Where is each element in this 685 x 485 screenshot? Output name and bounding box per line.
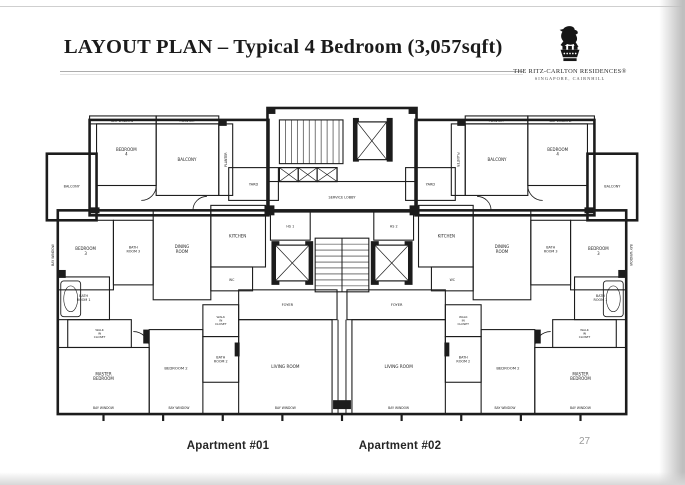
room-label: BALCONY [178,157,198,162]
room-stairs-top [279,120,343,164]
room-label: BAY WINDOW [51,243,55,265]
brand-name: THE RITZ-CARLTON RESIDENCES® [500,68,640,75]
room-label: BAY WINDOW [629,244,633,266]
room-label: BALCONY [64,185,81,189]
room-label: BATHROOM 1 [594,294,608,302]
wall-block [618,270,626,278]
door-swing [193,196,207,210]
wall-block [410,205,420,215]
wall-block [219,120,227,126]
page-title: LAYOUT PLAN – Typical 4 Bedroom (3,057sq… [64,36,534,59]
photo-right-edge [659,0,685,485]
room-label: WALKINCLOSET [215,315,227,326]
room-label: BALCONY [604,185,621,189]
wall-block [264,205,274,215]
caption-apartment-02: Apartment #02 [359,440,442,452]
room-label: BAY WINDOW [111,119,134,123]
wall-block [267,108,275,114]
room-label: LIVING ROOM [271,364,300,369]
photo-bottom-edge [0,472,685,485]
room-label: WC [450,278,456,282]
room-label: PLANTER [180,119,196,123]
wall-block [235,343,240,357]
ritz-carlton-logo: THE RITZ-CARLTON RESIDENCES® SINGAPORE, … [500,24,640,81]
room-label: BEDROOM 2 [496,367,520,371]
room-label: BATHROOM 1 [77,294,91,302]
wall-block [457,120,465,126]
room-label: BATHROOM 2 [214,356,228,364]
room-dining-l [153,210,211,299]
room-label: BAY WINDOW [495,406,516,410]
room-label: MASTERBEDROOM [570,371,591,381]
door-swing [477,196,491,210]
room-bedroom2-r [481,330,535,414]
title-divider [60,71,523,75]
room-label: DININGROOM [175,244,189,254]
caption-apartment-01: Apartment #01 [187,440,270,452]
room-label: KITCHEN [438,234,455,239]
room-bedroom2-l [149,330,203,414]
room-label: BEDROOM3 [75,246,96,256]
room-label: HS 2 [390,224,398,228]
room-label: BAY WINDOW [388,406,409,410]
room-label: PLANTER [456,152,460,167]
wall-block [409,108,417,114]
room-label: MASTERBEDROOM [93,371,114,381]
wall-block [584,207,594,213]
room-label: WALKINCLOSET [579,328,591,339]
room-label: BAY WINDOW [275,406,296,410]
door-swing [528,186,543,201]
wall-block [333,400,351,409]
room-label: WC [229,278,235,282]
floor-plan: BAY WINDOWPLANTERBEDROOM4BALCONYPLANTERB… [43,106,641,424]
page-number: 27 [579,436,590,447]
room-label: LIVING ROOM [385,364,414,369]
room-label: BEDROOM4 [116,147,137,157]
room-label: SERVICE LOBBY [329,196,357,200]
room-label: BATHROOM 3 [126,245,140,253]
plan-svg: BAY WINDOWPLANTERBEDROOM4BALCONYPLANTERB… [43,106,641,424]
room-label: YARD [426,183,436,187]
room-label: FOYER [391,303,403,307]
room-label: WALKINCLOSET [94,328,106,339]
wall-block [387,118,393,162]
room-label: KITCHEN [229,234,246,239]
room-label: HS 1 [286,224,294,228]
wall-block [90,207,100,213]
wall-block [444,343,449,357]
room-label: WALKINCLOSET [457,315,469,326]
room-label: FOYER [282,303,294,307]
room-label: YARD [249,183,259,187]
room-label: BAY WINDOW [169,406,190,410]
room-label: BEDROOM 2 [164,367,188,371]
room-label: BATHROOM 2 [456,356,470,364]
room-label: DININGROOM [495,244,509,254]
room-label: BEDROOM3 [588,246,609,256]
wall-block [58,270,66,278]
brand-location: SINGAPORE, CAIRNHILL [500,76,640,81]
room-label: BEDROOM4 [547,147,568,157]
room-label: BAY WINDOW [570,406,591,410]
room-label: BAY WINDOW [93,406,114,410]
lion-crest-icon [553,24,587,66]
photo-top-edge [0,6,685,7]
room-label: PLANTER [489,119,505,123]
room-label: BAY WINDOW [550,119,573,123]
door-swing [141,186,156,201]
room-label: BATHROOM 3 [544,245,558,253]
room-label: BALCONY [488,157,508,162]
room-dining-r [473,210,531,299]
room-label: PLANTER [224,152,228,167]
